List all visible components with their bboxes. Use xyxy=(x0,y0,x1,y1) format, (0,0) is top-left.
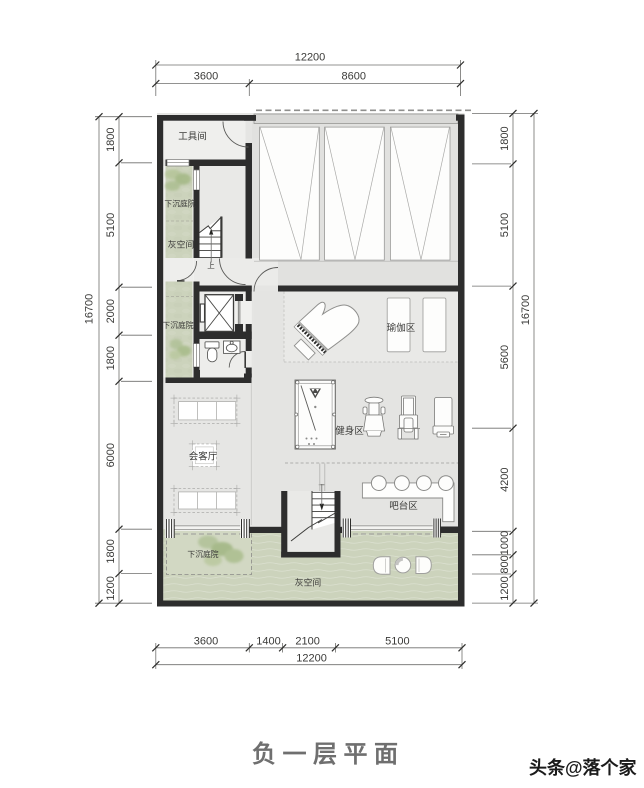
svg-text:工具间: 工具间 xyxy=(178,131,207,143)
svg-text:1200: 1200 xyxy=(105,576,117,600)
svg-text:5100: 5100 xyxy=(385,636,409,648)
svg-text:12200: 12200 xyxy=(295,52,326,64)
svg-text:1800: 1800 xyxy=(499,126,511,150)
svg-text:1800: 1800 xyxy=(105,127,117,151)
svg-text:2100: 2100 xyxy=(295,636,319,648)
svg-text:上: 上 xyxy=(207,261,215,270)
svg-text:3600: 3600 xyxy=(194,636,218,648)
svg-text:下沉庭院: 下沉庭院 xyxy=(162,320,193,330)
svg-text:5100: 5100 xyxy=(499,213,511,237)
svg-text:1800: 1800 xyxy=(105,539,117,563)
svg-text:4200: 4200 xyxy=(499,467,511,491)
svg-text:2000: 2000 xyxy=(105,299,117,323)
svg-text:1400: 1400 xyxy=(256,636,280,648)
svg-text:吧台区: 吧台区 xyxy=(389,500,418,512)
svg-text:灰空间: 灰空间 xyxy=(295,577,322,588)
svg-text:灰空间: 灰空间 xyxy=(168,239,195,250)
svg-text:5600: 5600 xyxy=(499,345,511,369)
svg-text:16700: 16700 xyxy=(520,295,532,326)
svg-text:3600: 3600 xyxy=(194,70,218,82)
svg-text:8600: 8600 xyxy=(342,70,366,82)
svg-text:16700: 16700 xyxy=(84,294,96,325)
svg-text:12200: 12200 xyxy=(296,653,327,665)
svg-text:1800: 1800 xyxy=(105,346,117,370)
svg-text:6000: 6000 xyxy=(105,443,117,467)
svg-text:健身区: 健身区 xyxy=(335,425,364,437)
svg-text:5100: 5100 xyxy=(105,213,117,237)
svg-text:800: 800 xyxy=(499,555,511,573)
svg-text:下沉庭院: 下沉庭院 xyxy=(187,549,218,559)
svg-text:会客厅: 会客厅 xyxy=(189,451,218,463)
svg-text:瑜伽区: 瑜伽区 xyxy=(387,322,416,334)
svg-text:下沉庭院: 下沉庭院 xyxy=(164,199,195,209)
svg-text:1000: 1000 xyxy=(499,531,511,555)
svg-text:1200: 1200 xyxy=(499,576,511,600)
